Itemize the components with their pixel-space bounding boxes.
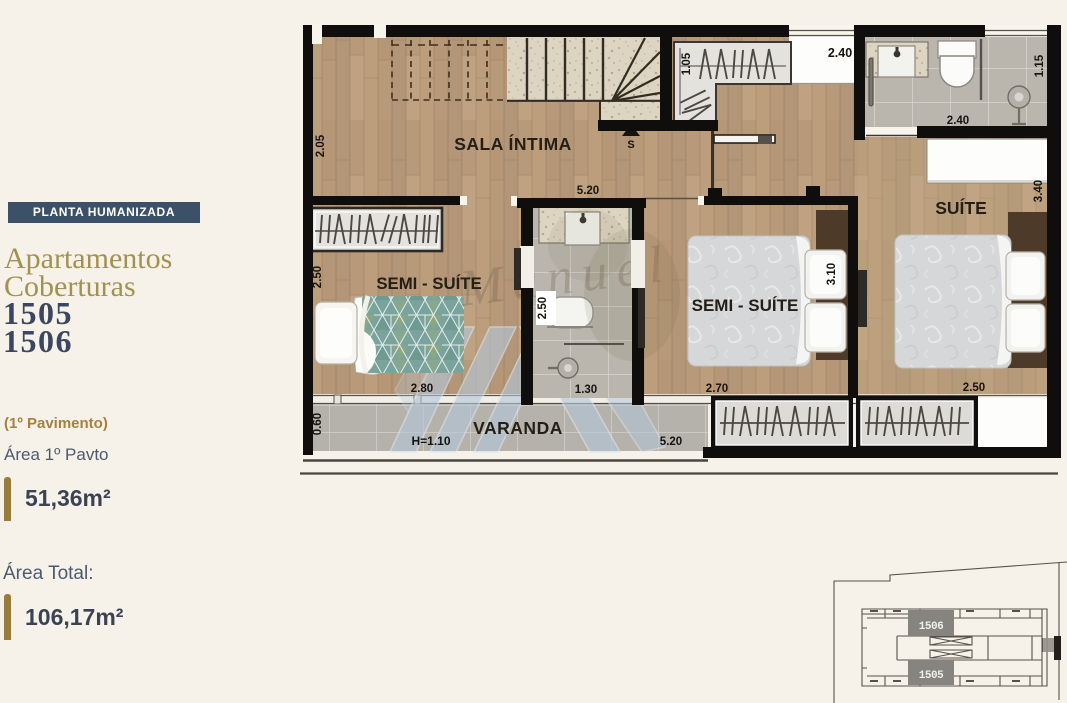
svg-text:SEMI - SUÍTE: SEMI - SUÍTE	[376, 274, 481, 293]
svg-text:2.40: 2.40	[947, 115, 969, 127]
svg-text:5.20: 5.20	[660, 436, 682, 448]
svg-text:2.40: 2.40	[828, 46, 852, 60]
svg-text:2.50: 2.50	[963, 382, 985, 394]
svg-text:1.15: 1.15	[1034, 54, 1046, 77]
svg-text:S: S	[627, 139, 634, 151]
svg-text:1.05: 1.05	[681, 52, 693, 75]
svg-text:2.50: 2.50	[537, 297, 549, 319]
svg-text:2.70: 2.70	[706, 383, 728, 395]
svg-text:H=1.10: H=1.10	[411, 434, 450, 448]
svg-text:3.10: 3.10	[826, 263, 838, 285]
svg-text:SEMI - SUÍTE: SEMI - SUÍTE	[692, 296, 799, 315]
svg-text:2.05: 2.05	[315, 134, 327, 157]
svg-text:VARANDA: VARANDA	[473, 418, 563, 438]
svg-text:5.20: 5.20	[577, 185, 599, 197]
svg-text:3.40: 3.40	[1033, 180, 1045, 202]
svg-text:SALA ÍNTIMA: SALA ÍNTIMA	[454, 133, 572, 154]
svg-text:SUÍTE: SUÍTE	[935, 197, 987, 218]
svg-text:1.30: 1.30	[575, 384, 597, 396]
svg-text:1505: 1505	[919, 670, 944, 682]
svg-text:1506: 1506	[919, 621, 943, 633]
svg-text:0.60: 0.60	[312, 413, 324, 435]
svg-text:2.50: 2.50	[312, 266, 324, 288]
svg-text:2.80: 2.80	[411, 383, 433, 395]
